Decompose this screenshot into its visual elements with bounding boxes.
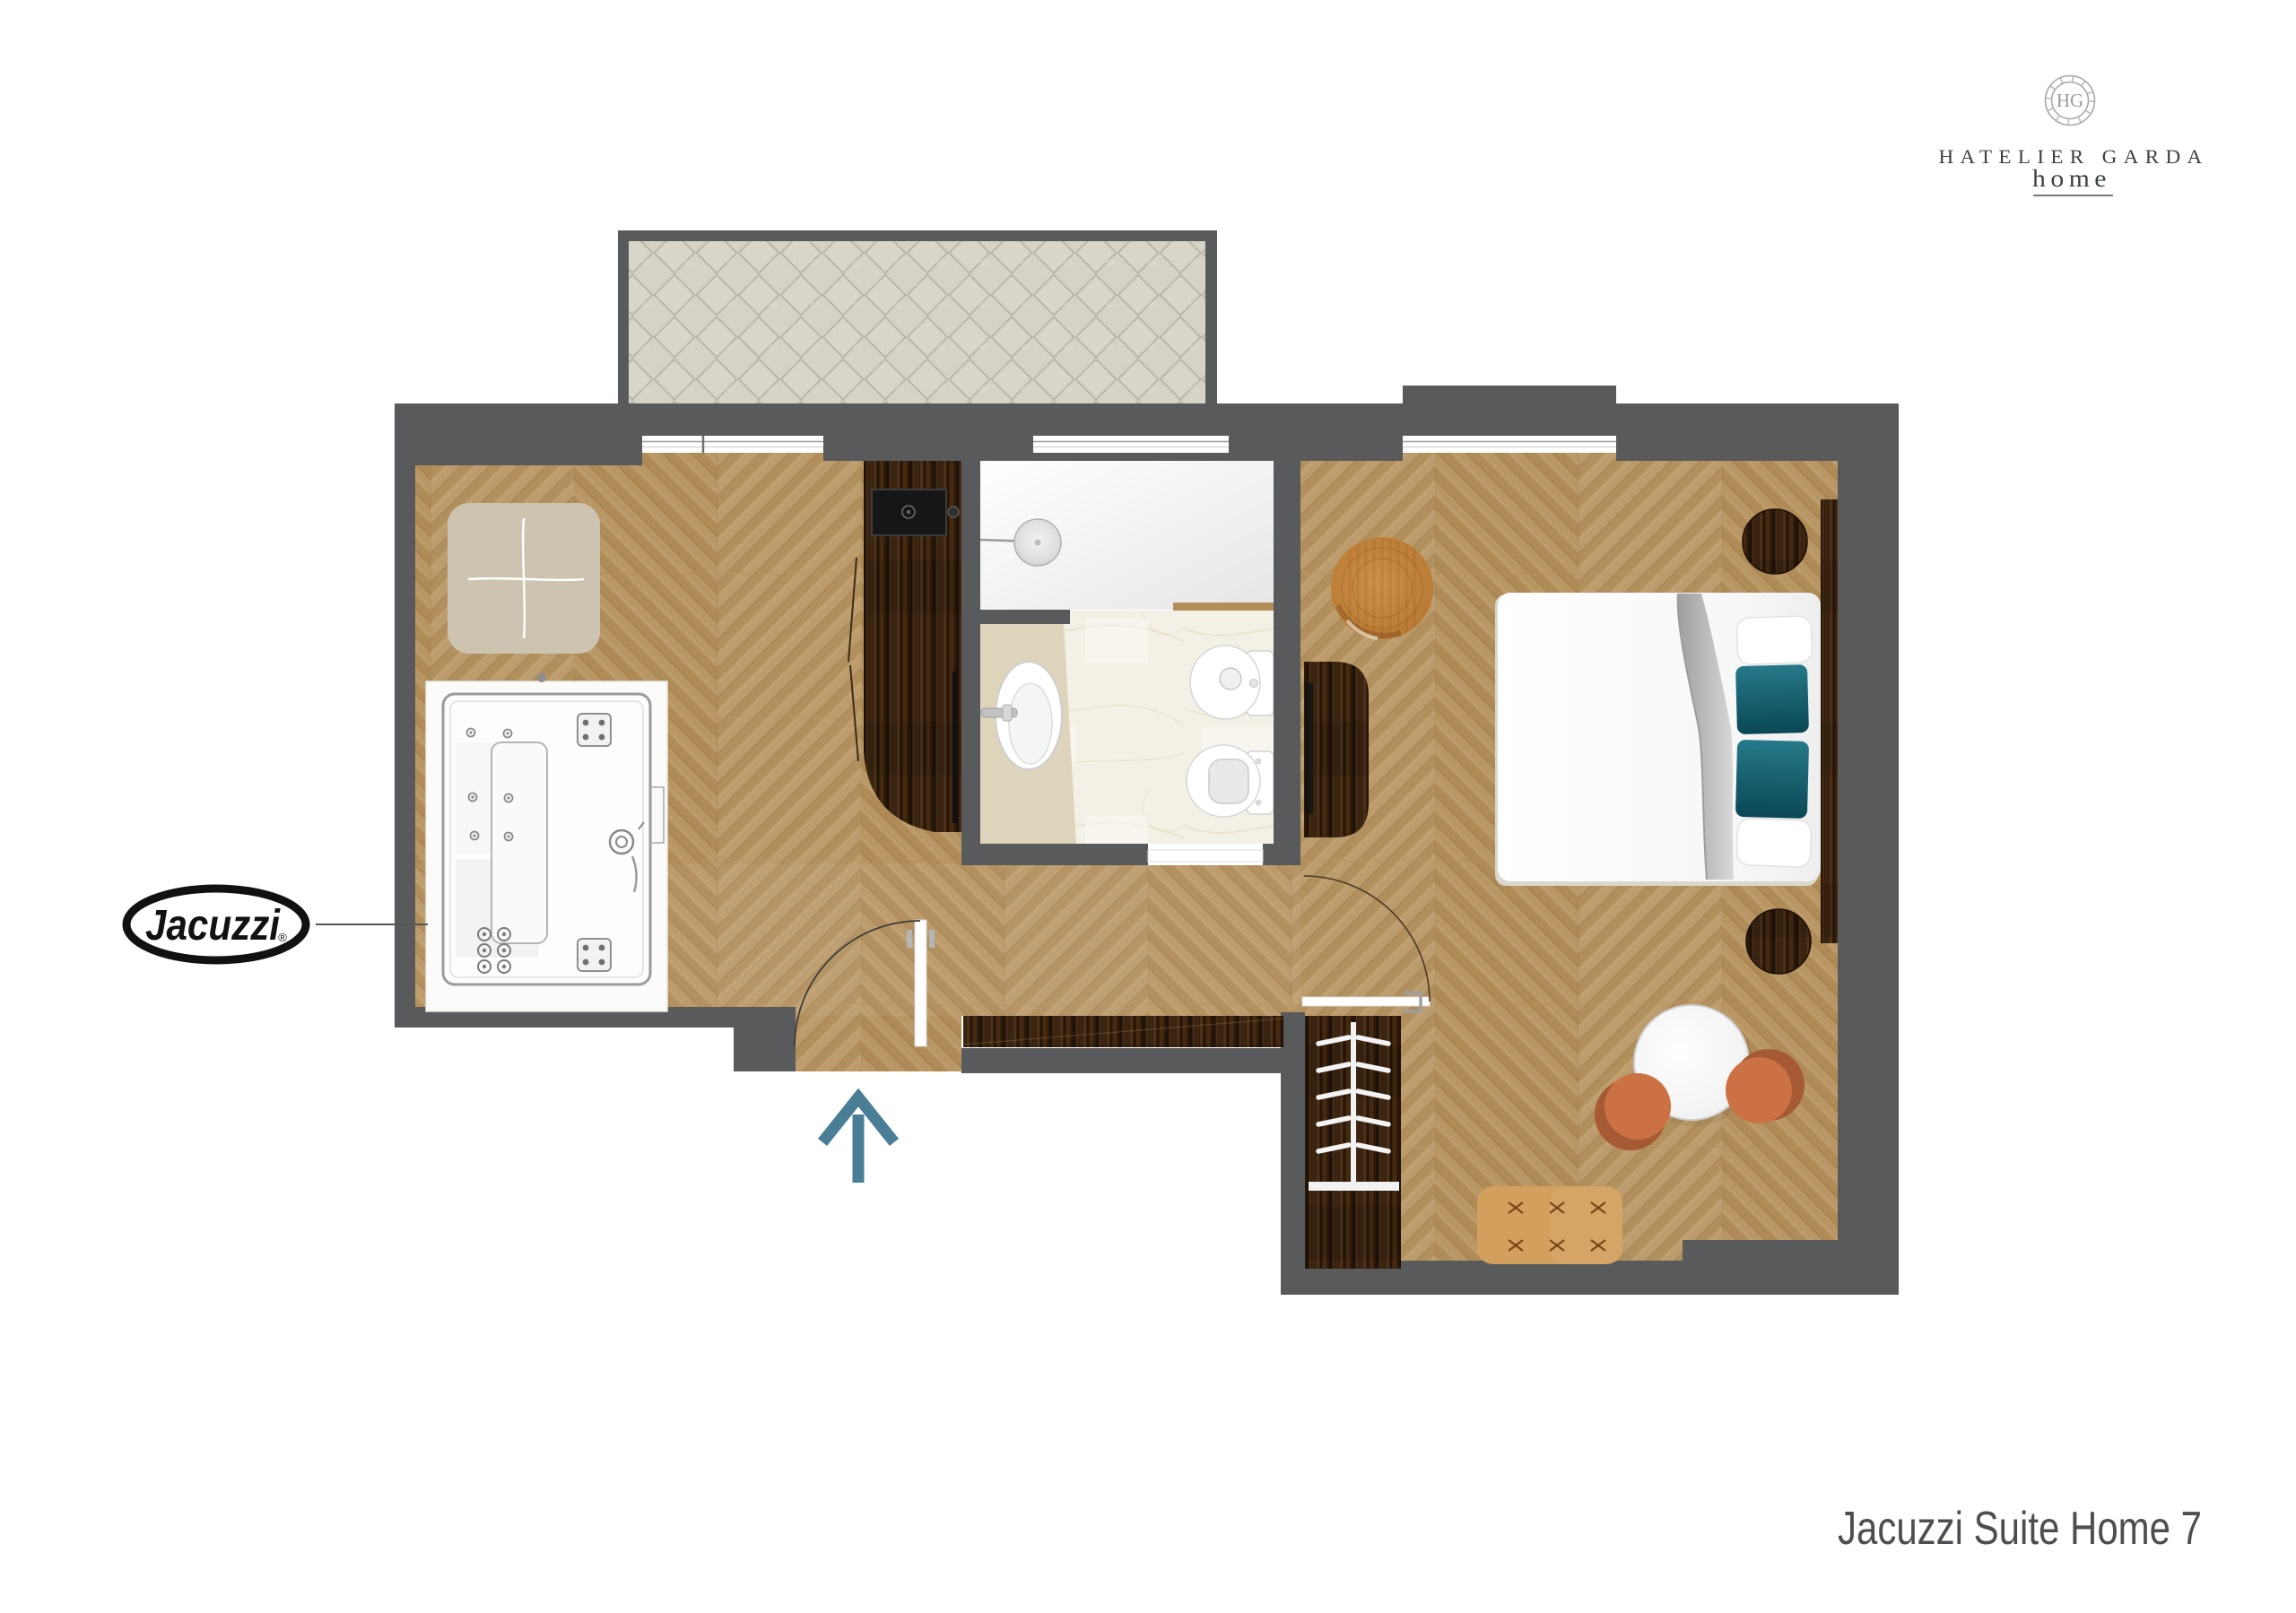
svg-text:®: ® — [278, 931, 287, 944]
svg-text:Jacuzzi Suite Home 7: Jacuzzi Suite Home 7 — [1838, 1503, 2202, 1555]
svg-text:HG: HG — [2057, 90, 2083, 111]
svg-text:Jacuzzi: Jacuzzi — [145, 902, 281, 950]
svg-text:home: home — [2032, 165, 2111, 192]
